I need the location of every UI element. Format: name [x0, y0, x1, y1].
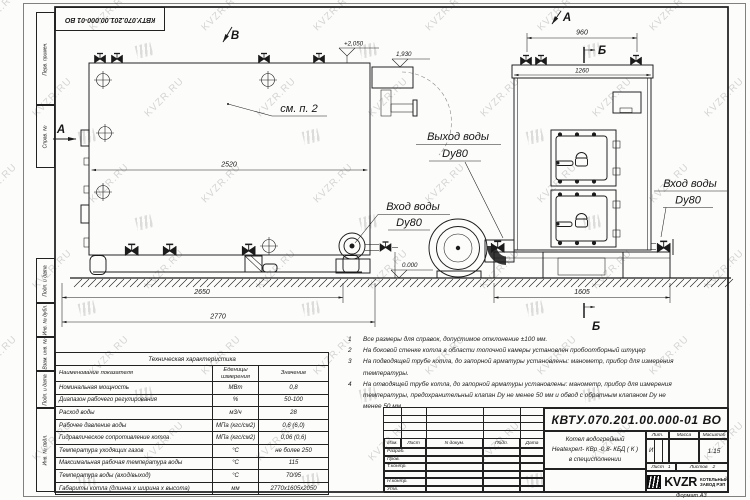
doc-number-cell: КВТУ.070.201.00.000-01 ВО	[544, 408, 729, 431]
change-table-header: Изм. Лист N докум. Подп. Дата	[384, 438, 544, 448]
margin-box-vzam-inv: Взам. инв. №	[36, 337, 55, 371]
col-header: Еденицы измерения	[213, 366, 259, 382]
sheet-cell: Лист1	[646, 463, 676, 471]
lit-header: Лит.	[646, 431, 669, 439]
table-row: Номинальная мощностьМВт0,8	[56, 382, 329, 395]
note-item: 1Все размеры для справок, допустимое отк…	[346, 334, 686, 345]
table-row: Максимальная рабочая температура воды°С1…	[56, 457, 329, 470]
scale-header: Масштаб	[699, 431, 729, 439]
margin-box-podp-data-1: Подп. и дата	[36, 258, 55, 303]
lit-value: И	[646, 439, 669, 463]
table-row: Рабочее давление водыМПа (кгс/см2)0,6 (6…	[56, 419, 329, 432]
kvzr-logo-text: KVZR	[664, 475, 697, 489]
sheets-cell: Листов2	[676, 463, 729, 471]
table-row: Гидравлическое сопротивление котлаМПа (к…	[56, 432, 329, 445]
notes-list: 1Все размеры для справок, допустимое отк…	[346, 334, 686, 412]
table-row: Температура уходящих газов°Сне более 250	[56, 444, 329, 457]
doc-number-rotated: КВТУ.070.201.00.000-01 ВО	[65, 16, 155, 23]
kvzr-logo-subtitle: КОТЕЛЬНЫЙ ЗАВОД РЭП	[700, 477, 728, 488]
annotation-layer: КВТУ.070.201.00.000-01 ВО Перв. примен. …	[0, 0, 750, 500]
margin-box-sprav-no: Справ. №	[36, 105, 55, 168]
margin-box-perv-primen: Перв. примен.	[36, 12, 55, 105]
tech-characteristics-table: Техническая характеристика Наименование …	[55, 352, 329, 495]
table-row: Диапазон рабочего регулирования%50-100	[56, 394, 329, 407]
format-label: Формат А3	[676, 493, 707, 499]
table-row: Габариты котла (длинна х ширина х высота…	[56, 482, 329, 495]
col-header: Значение	[259, 366, 329, 382]
table-caption: Техническая характеристика	[56, 353, 329, 366]
signature-rows: Разраб. Пров. Т.контр. Н.контр. Утв.	[384, 448, 544, 493]
doc-number-top-box: КВТУ.070.201.00.000-01 ВО	[55, 7, 165, 31]
drawing-sheet: KVZR.RUKVZR.RUKVZR.RUKVZR.RUKVZR.RUKVZR.…	[0, 0, 750, 500]
col-header: Наименование показателя	[56, 366, 213, 382]
scale-value: 1:15	[699, 439, 729, 463]
note-item: 2На боковой стенке котла в области топоч…	[346, 345, 686, 356]
margin-box-inv-podl: Инв. № подл.	[36, 408, 55, 492]
title-block: Изм. Лист N докум. Подп. Дата Разраб. Пр…	[383, 407, 728, 492]
margin-box-podp-data-2: Подп. и дата	[36, 371, 55, 408]
table-row: Температура воды (вход/выход)°С70/95	[56, 470, 329, 483]
change-table	[384, 408, 544, 438]
table-row: Расход водым3/ч28	[56, 407, 329, 420]
factory-logo-cell: KVZR КОТЕЛЬНЫЙ ЗАВОД РЭП	[646, 471, 729, 493]
mass-value	[669, 439, 699, 463]
margin-box-inv-dubl: Инв. № дубл.	[36, 303, 55, 337]
product-name-cell: Котел водогрейный Heatexpert- КВр -0,8- …	[544, 431, 646, 469]
kvzr-logo-icon	[647, 475, 661, 489]
mass-header: Масса	[669, 431, 699, 439]
note-item: 3На подводящей трубе котла, до запорной …	[346, 356, 686, 378]
empty-cell	[544, 469, 646, 493]
